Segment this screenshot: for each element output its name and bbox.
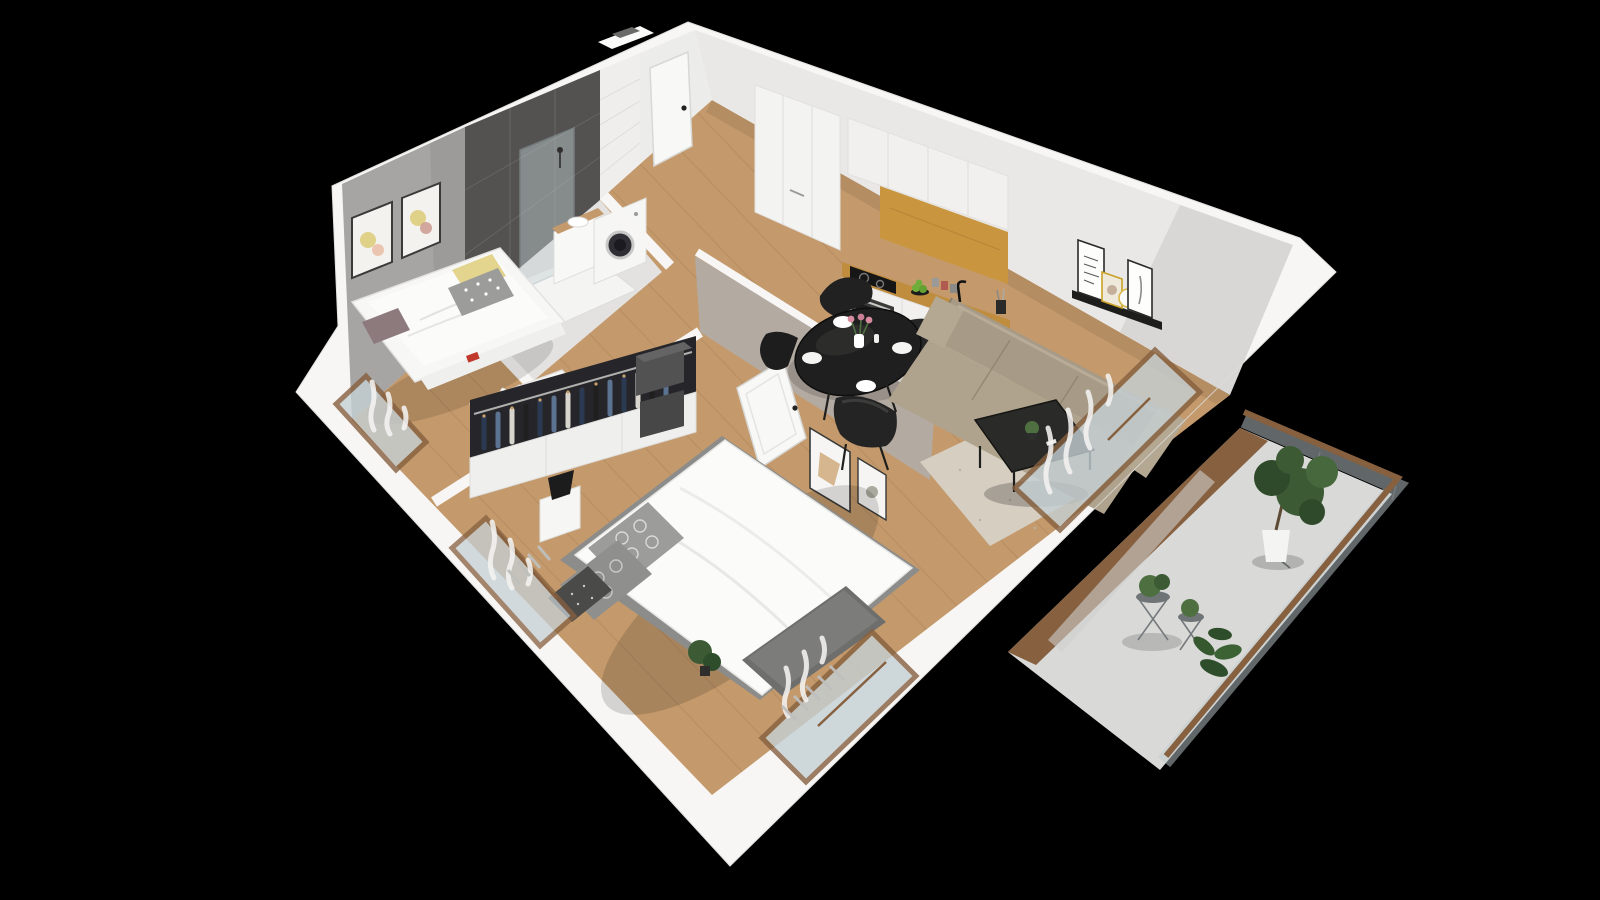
door-handle <box>792 405 797 410</box>
gold-frame-art <box>1107 285 1117 295</box>
ficus-pot <box>1262 530 1290 562</box>
salt-shaker <box>874 334 879 343</box>
sheer-curtain <box>387 394 390 434</box>
plate <box>856 380 876 392</box>
utensil-cup <box>996 300 1006 314</box>
spice-jar <box>932 278 939 287</box>
tulip <box>866 317 873 324</box>
vase <box>854 334 864 348</box>
sheer-curtain <box>822 638 825 662</box>
coffee-table-plant-pot <box>1028 433 1036 440</box>
tulip <box>858 314 865 321</box>
print-art <box>420 222 432 234</box>
washer-drum <box>614 239 626 251</box>
coffee-table-plant <box>1025 421 1039 435</box>
ficus-foliage <box>1299 499 1325 525</box>
shower-head <box>557 147 563 153</box>
sink-basin <box>568 217 588 227</box>
apple <box>919 285 927 293</box>
apple <box>916 280 923 287</box>
plant-shadow <box>1122 633 1182 651</box>
floorplan-render <box>0 0 1600 900</box>
print-art <box>360 232 376 248</box>
spice-jar <box>950 284 957 293</box>
door-handle <box>681 105 686 110</box>
plate <box>892 342 912 354</box>
washer-knob <box>634 212 638 216</box>
spice-jar <box>941 281 948 290</box>
ledge-frame-feather <box>1128 260 1152 318</box>
print-art <box>372 244 384 256</box>
screenshot-canvas <box>0 0 1600 900</box>
tulip <box>848 316 855 323</box>
sheer-curtain <box>404 408 406 428</box>
ficus-foliage <box>1276 446 1304 474</box>
stand-plant <box>1154 574 1170 590</box>
tulip-stem <box>860 320 861 334</box>
stand-plant <box>1181 599 1199 617</box>
ledge-frame-script <box>1078 240 1104 301</box>
plant-pot <box>700 666 710 676</box>
utensil <box>1003 289 1004 300</box>
sheer-curtain <box>371 382 374 430</box>
plate <box>802 352 822 364</box>
ficus-foliage <box>1306 456 1338 488</box>
